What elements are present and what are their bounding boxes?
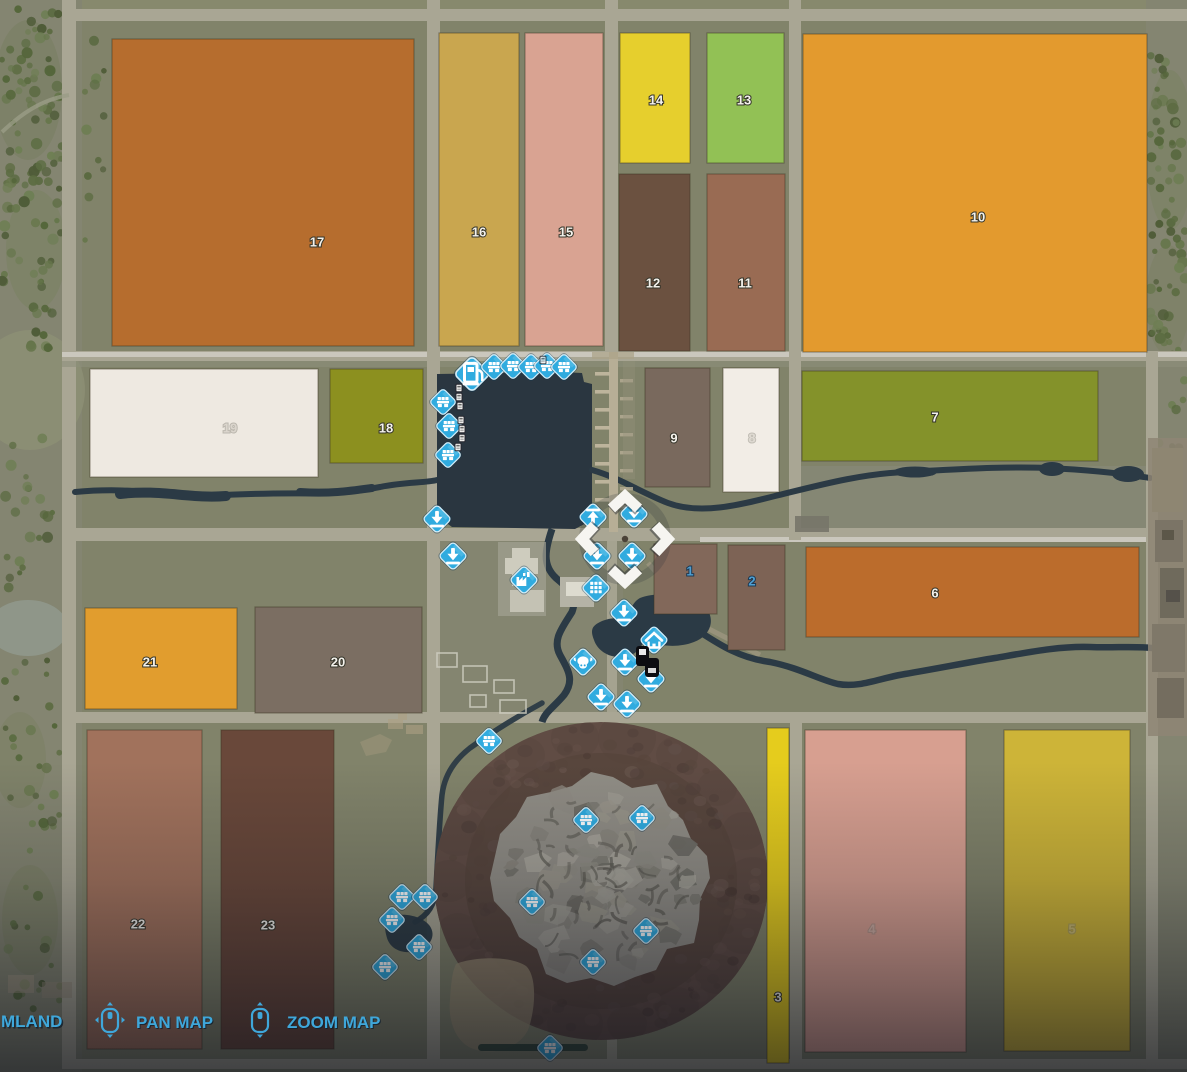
svg-text:10: 10 bbox=[971, 210, 985, 225]
svg-text:PAN MAP: PAN MAP bbox=[136, 1013, 213, 1032]
svg-text:16: 16 bbox=[472, 225, 486, 240]
svg-text:18: 18 bbox=[379, 421, 393, 436]
svg-text:6: 6 bbox=[931, 586, 938, 601]
svg-text:9: 9 bbox=[670, 431, 677, 446]
svg-text:13: 13 bbox=[737, 93, 751, 108]
svg-text:20: 20 bbox=[331, 655, 345, 670]
svg-text:8: 8 bbox=[748, 431, 755, 446]
svg-text:21: 21 bbox=[143, 655, 157, 670]
svg-text:MLAND: MLAND bbox=[1, 1012, 62, 1031]
svg-text:17: 17 bbox=[310, 235, 324, 250]
svg-text:1: 1 bbox=[686, 564, 693, 579]
svg-text:12: 12 bbox=[646, 276, 660, 291]
svg-text:ZOOM MAP: ZOOM MAP bbox=[287, 1013, 381, 1032]
svg-text:7: 7 bbox=[931, 410, 938, 425]
svg-text:2: 2 bbox=[748, 574, 755, 589]
svg-text:14: 14 bbox=[649, 93, 664, 108]
svg-text:15: 15 bbox=[559, 225, 573, 240]
svg-text:19: 19 bbox=[223, 421, 237, 436]
svg-text:11: 11 bbox=[738, 276, 752, 291]
